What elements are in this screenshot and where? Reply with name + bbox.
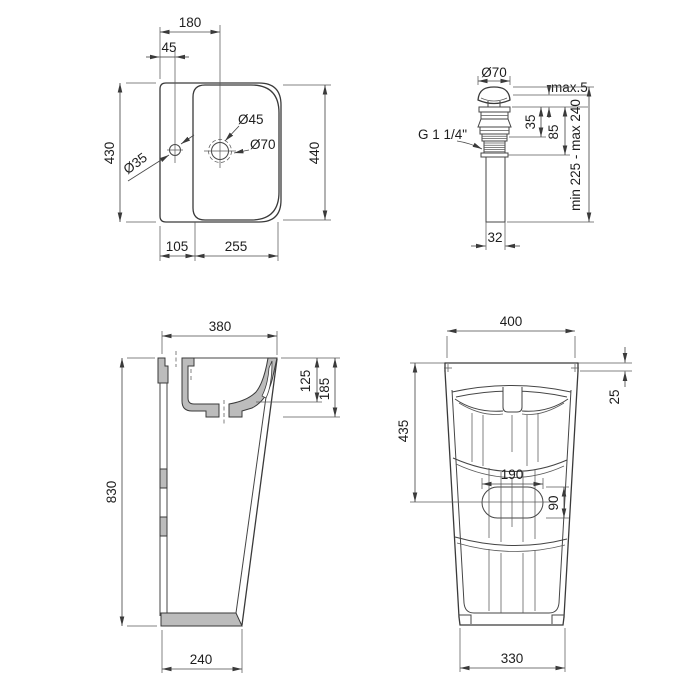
dim-label-830: 830 bbox=[104, 481, 119, 504]
dim-height-to-opening: 435 bbox=[396, 363, 415, 502]
dim-label-430: 430 bbox=[102, 142, 117, 165]
dim-label-105: 105 bbox=[166, 239, 189, 254]
dim-label-435: 435 bbox=[396, 420, 411, 443]
dim-label-32: 32 bbox=[487, 230, 502, 245]
valve-flange bbox=[479, 107, 510, 112]
dim-label-240: 240 bbox=[190, 652, 213, 667]
valve-gasket bbox=[478, 119, 511, 127]
dim-label-min-max: min 225 - max 240 bbox=[568, 99, 583, 211]
dim-label-440: 440 bbox=[307, 142, 322, 165]
wall-tab bbox=[160, 469, 167, 488]
rear-view: 400 25 435 190 90 bbox=[396, 314, 632, 672]
dim-label-255: 255 bbox=[225, 239, 248, 254]
service-opening bbox=[482, 487, 543, 518]
valve-tube bbox=[486, 157, 505, 222]
dim-label-125: 125 bbox=[298, 370, 313, 393]
dim-depth-top: 380 bbox=[162, 319, 277, 355]
technical-drawing-canvas: 180 45 430 440 105 bbox=[0, 0, 700, 700]
dim-label-400: 400 bbox=[500, 314, 523, 329]
dim-height-left: 430 bbox=[102, 83, 156, 222]
dim-label-90: 90 bbox=[546, 495, 561, 510]
top-view: 180 45 430 440 105 bbox=[102, 15, 331, 261]
dim-height-right: 440 bbox=[283, 85, 331, 220]
base-section bbox=[161, 613, 242, 626]
dim-valve-cap: Ø70 bbox=[478, 65, 510, 85]
dim-total-height: 830 bbox=[104, 358, 157, 626]
dim-width-top: 400 bbox=[447, 314, 575, 358]
overflow-tab bbox=[503, 387, 522, 412]
dim-base-depth: 240 bbox=[162, 629, 242, 673]
dim-label-dia45: Ø45 bbox=[238, 112, 264, 127]
washbasin-dimension-drawing: 180 45 430 440 105 bbox=[0, 0, 700, 700]
label-drain-outer: Ø70 bbox=[234, 137, 276, 153]
wall-tab bbox=[160, 517, 167, 536]
dim-label-valve-dia70: Ø70 bbox=[481, 65, 507, 80]
side-section-view: 380 830 125 185 240 bbox=[104, 319, 340, 673]
dim-label-185: 185 bbox=[317, 378, 332, 401]
dim-faucet-offset: 45 bbox=[146, 40, 189, 57]
dim-label-25: 25 bbox=[607, 389, 622, 404]
drain-valve-view: Ø70 max.5 35 85 min 225 - max 240 bbox=[418, 65, 594, 250]
dim-label-85: 85 bbox=[546, 124, 561, 139]
dim-base-width: 330 bbox=[460, 628, 565, 672]
dim-label-dia35: Ø35 bbox=[121, 150, 150, 177]
dim-flange-depth: 35 bbox=[509, 107, 546, 137]
dim-label-thread: G 1 1/4" bbox=[418, 127, 467, 142]
dim-deck-and-bowl-width: 105 255 bbox=[160, 222, 278, 261]
dim-label-330: 330 bbox=[501, 651, 524, 666]
dim-label-180: 180 bbox=[179, 15, 202, 30]
dim-label-380: 380 bbox=[209, 319, 232, 334]
label-faucet-hole: Ø35 bbox=[121, 135, 194, 181]
dim-label-190: 190 bbox=[501, 467, 524, 482]
dim-label-35: 35 bbox=[523, 114, 538, 129]
dim-top-edge: 25 bbox=[580, 347, 632, 405]
dim-label-dia70: Ø70 bbox=[250, 137, 276, 152]
dim-label-45: 45 bbox=[161, 40, 176, 55]
dim-body-depth: 85 bbox=[508, 107, 570, 155]
wall-bracket bbox=[158, 358, 168, 383]
dim-pipe-diameter: 32 bbox=[471, 222, 520, 250]
dim-label-max5: max.5 bbox=[551, 80, 588, 95]
bowl-section-left bbox=[182, 358, 219, 417]
label-thread: G 1 1/4" bbox=[418, 127, 482, 149]
